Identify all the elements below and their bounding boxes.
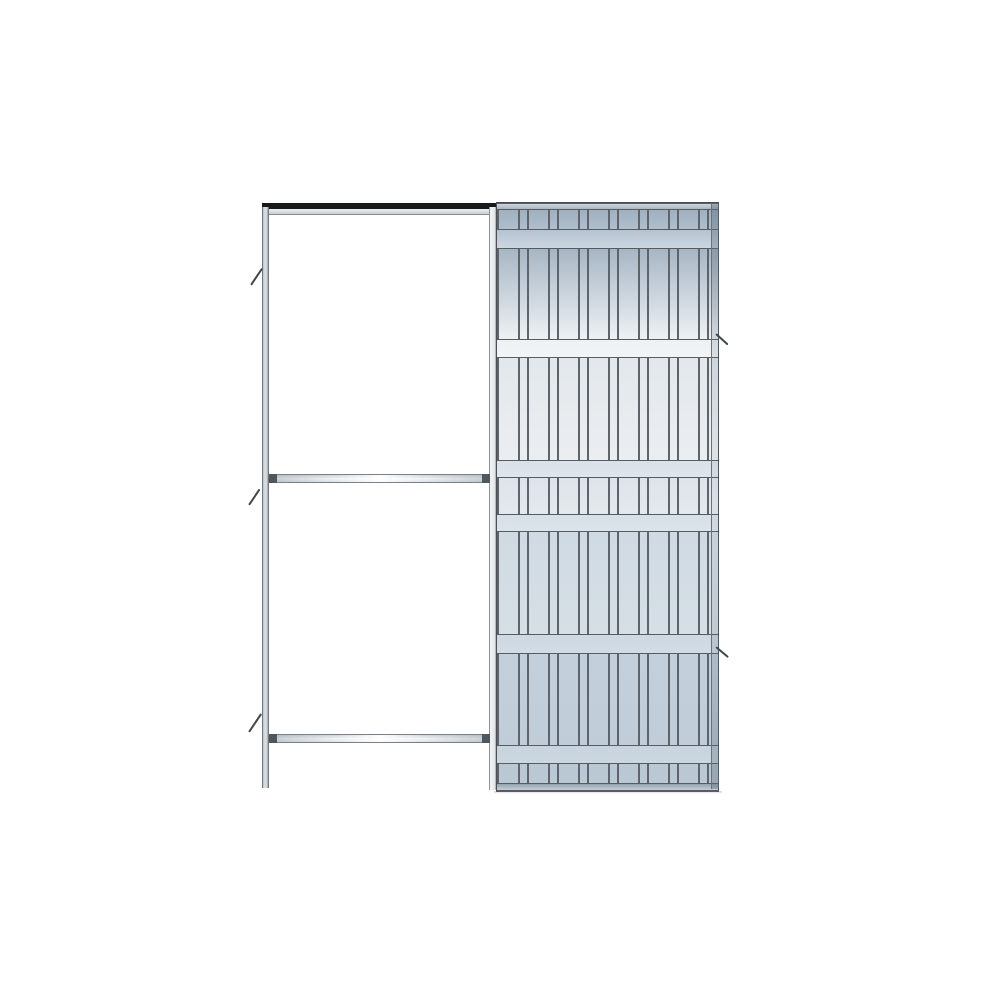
product-illustration — [0, 0, 1000, 1000]
cassette-row-band — [497, 229, 718, 249]
cassette-row-band — [497, 339, 718, 358]
wall-break-mark — [248, 489, 260, 506]
crossbar-lower — [269, 734, 490, 743]
crossbar-middle — [269, 474, 490, 483]
crossbar-end-cap-right — [482, 734, 490, 743]
cassette-row-ribs — [497, 358, 718, 460]
wall-break-mark — [248, 713, 262, 732]
crossbar-end-cap-left — [269, 734, 277, 743]
cassette-row-band — [497, 634, 718, 654]
cassette-row-ribs — [497, 249, 718, 339]
cassette-row-ribs — [497, 764, 718, 783]
cassette-row-cap — [497, 783, 718, 791]
cassette-row-band — [497, 514, 718, 532]
crossbar-end-cap-right — [482, 474, 490, 483]
cassette-base-shadow — [494, 791, 722, 794]
left-jamb-post — [262, 207, 269, 788]
header-track-rail — [264, 209, 497, 215]
cassette-row-ribs — [497, 654, 718, 745]
crossbar-end-cap-left — [269, 474, 277, 483]
cassette-row-ribs — [497, 478, 718, 514]
cassette-row-cap — [497, 203, 718, 210]
cassette-right-edge — [711, 203, 719, 789]
cassette-row-ribs — [497, 210, 718, 229]
cassette-row-band — [497, 745, 718, 764]
cassette-row-band — [497, 460, 718, 478]
pocket-cassette — [496, 202, 719, 792]
cassette-row-ribs — [497, 532, 718, 634]
